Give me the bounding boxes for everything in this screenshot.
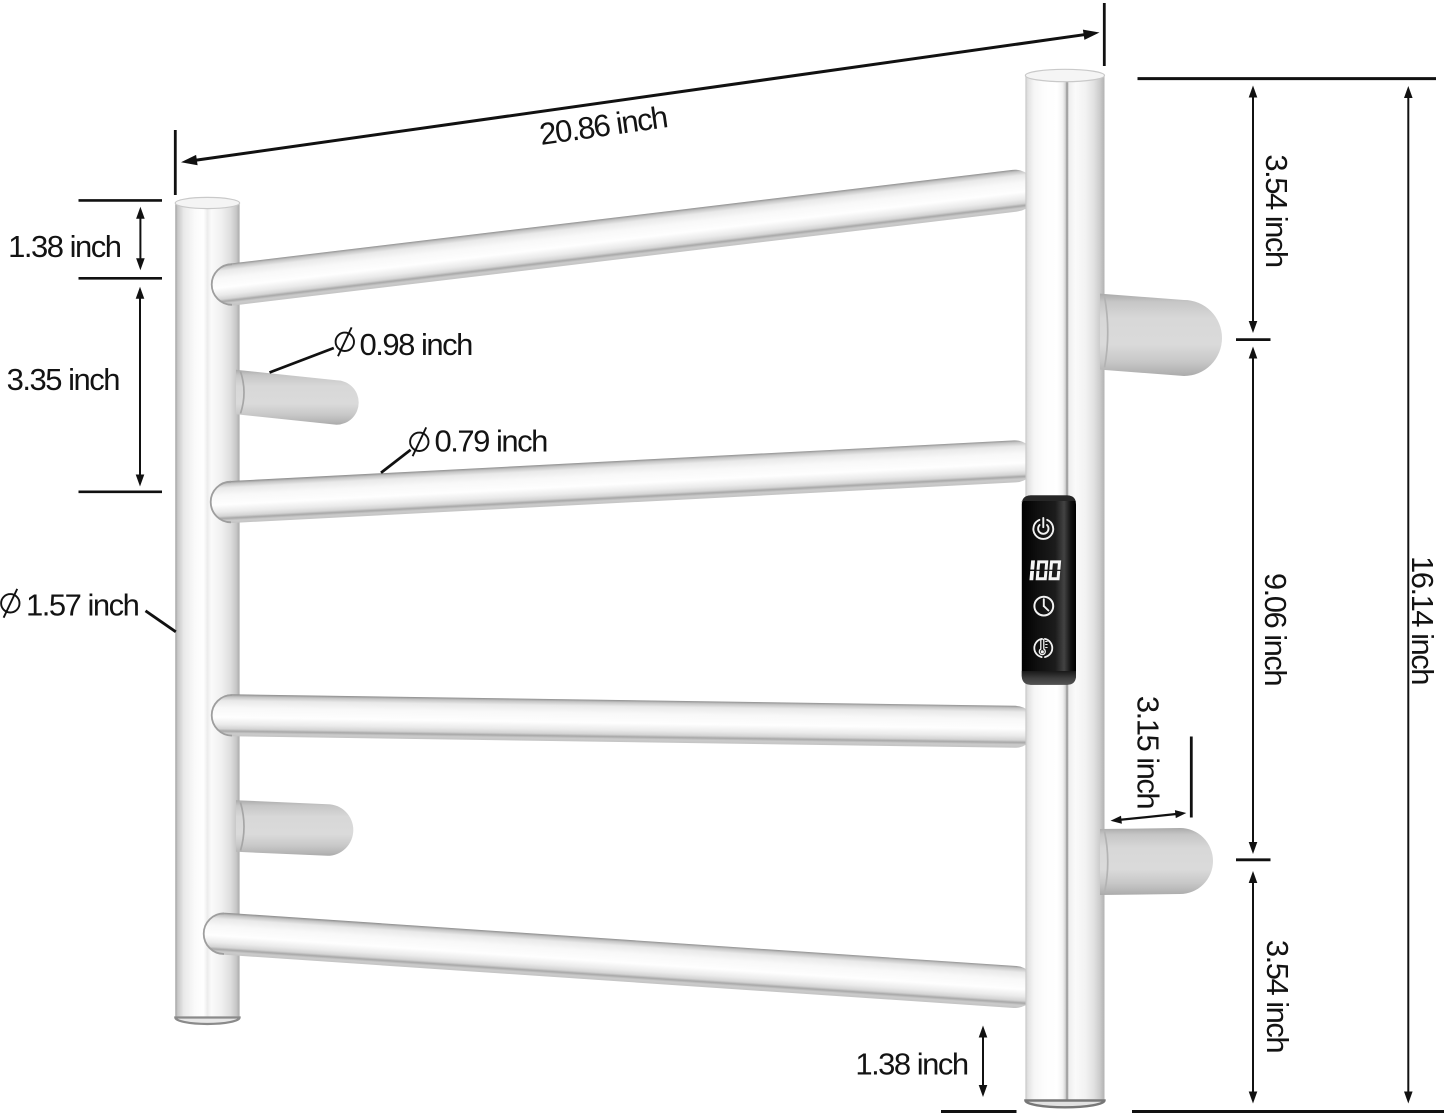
svg-text:0.79 inch: 0.79 inch	[435, 424, 548, 459]
svg-text:3.54 inch: 3.54 inch	[1260, 940, 1295, 1053]
svg-text:1.38 inch: 1.38 inch	[855, 1047, 968, 1082]
svg-text:3.54 inch: 3.54 inch	[1259, 154, 1294, 267]
svg-text:9.06 inch: 9.06 inch	[1258, 573, 1293, 686]
svg-text:0.98 inch: 0.98 inch	[360, 327, 473, 362]
svg-text:3.15 inch: 3.15 inch	[1131, 696, 1166, 809]
svg-text:1.38 inch: 1.38 inch	[8, 229, 121, 264]
svg-text:3.35 inch: 3.35 inch	[7, 362, 120, 397]
svg-text:16.14 inch: 16.14 inch	[1405, 556, 1440, 684]
svg-text:1.57 inch: 1.57 inch	[26, 588, 139, 623]
svg-text:20.86 inch: 20.86 inch	[537, 99, 669, 152]
